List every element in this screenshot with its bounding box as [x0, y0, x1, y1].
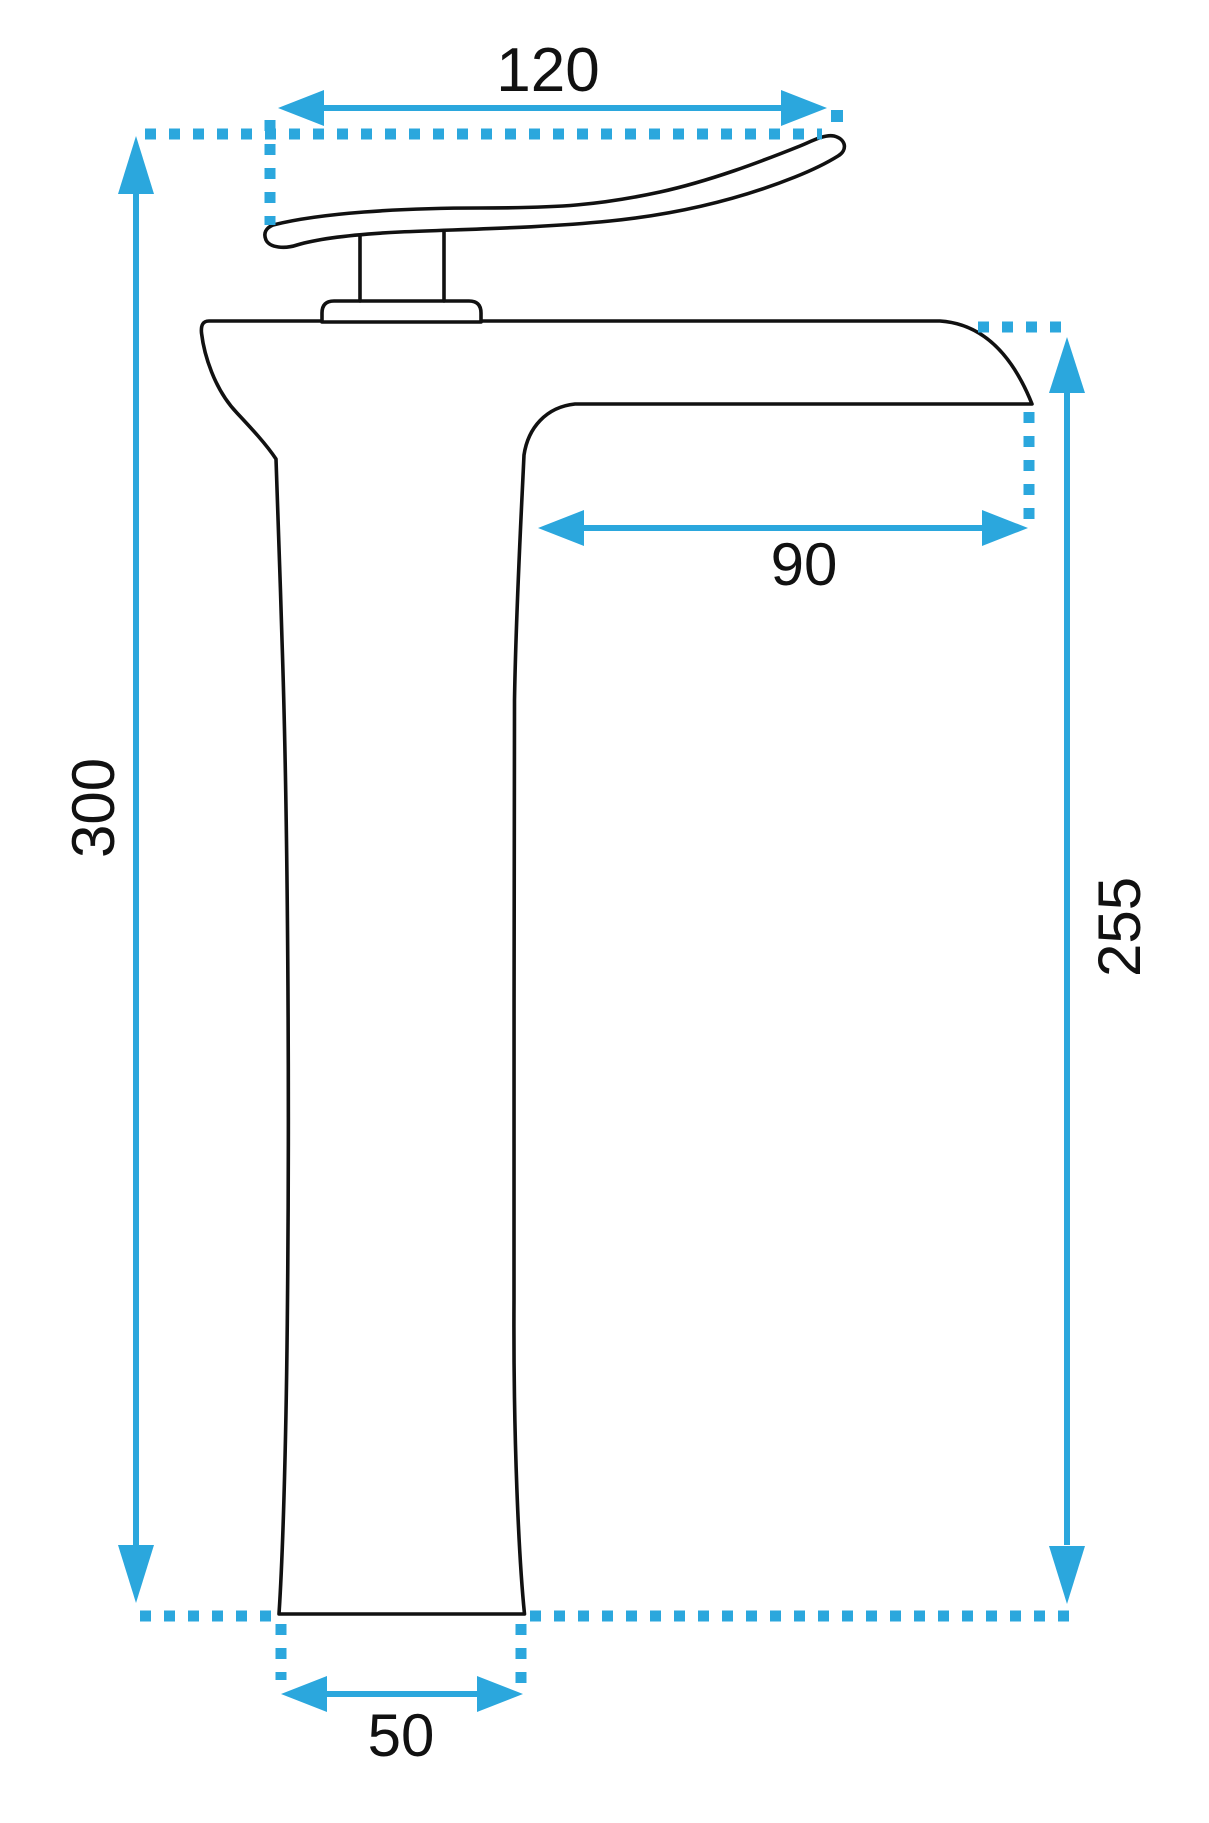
dim-label-base-width: 50 — [368, 1702, 435, 1769]
dim-label-spout-reach: 90 — [771, 531, 838, 598]
extension-dot-lever-tip — [831, 110, 843, 122]
dim-arrow-spout-height — [1049, 337, 1085, 1604]
dim-arrow-total-height — [118, 136, 154, 1603]
dim-label-handle-span: 120 — [496, 36, 599, 105]
faucet-dimension-drawing: 120 90 300 255 50 — [0, 0, 1209, 1823]
faucet-body-outline — [201, 321, 1032, 1614]
dim-label-spout-height: 255 — [1086, 877, 1153, 977]
handle-lever — [265, 136, 845, 248]
dim-label-total-height: 300 — [60, 758, 127, 858]
handle-base-cap — [322, 301, 481, 322]
